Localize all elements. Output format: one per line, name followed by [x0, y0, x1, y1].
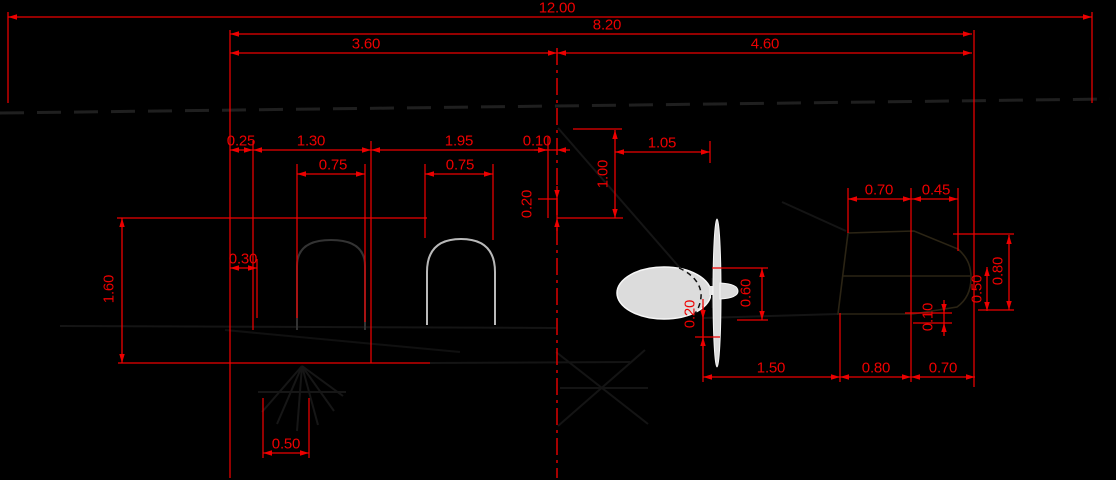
dim-label-offset-030: 0.30 — [229, 251, 257, 268]
dim-label-bay-130: 1.30 — [297, 133, 325, 150]
cad-drawing: 12.008.203.604.600.251.301.950.100.750.7… — [0, 0, 1116, 480]
dim-label-pod-clearance-020: 0.20 — [682, 300, 699, 328]
dim-label-rudder-height-080: 0.80 — [990, 257, 1007, 285]
dim-offset-030: 0.30 — [229, 251, 257, 271]
dim-label-rudder-050: 0.50 — [969, 275, 986, 303]
dim-label-bottom-050: 0.50 — [272, 436, 300, 453]
dim-label-rudder-top-045: 0.45 — [922, 182, 950, 199]
keel-line-dark — [430, 362, 630, 363]
dim-label-depth-160: 1.60 — [101, 275, 118, 303]
dim-label-aft-length: 8.20 — [593, 17, 621, 34]
dim-label-height-100: 1.00 — [595, 160, 612, 188]
cad-canvas: 12.008.203.604.600.251.301.950.100.750.7… — [0, 0, 1116, 480]
dim-label-tunnel1-width: 0.75 — [319, 157, 347, 174]
dim-label-cl-to-prop: 1.05 — [648, 135, 676, 152]
dim-label-pod-height-060: 0.60 — [738, 279, 755, 307]
dim-label-offset-025: 0.25 — [227, 133, 255, 150]
dim-label-overall-length: 12.00 — [539, 0, 576, 17]
dim-label-tunnel2-width: 0.75 — [446, 157, 474, 174]
dim-label-mid-to-cl: 3.60 — [352, 36, 380, 53]
dim-label-cl-020: 0.20 — [519, 190, 536, 218]
dim-label-rudder-bot-080: 0.80 — [862, 360, 890, 377]
dim-label-bay-195: 1.95 — [445, 133, 473, 150]
dim-label-rudder-rake-010: 0.10 — [920, 303, 937, 331]
dim-label-rudder-top-070: 0.70 — [865, 182, 893, 199]
dim-label-prop-to-rudder: 1.50 — [757, 360, 785, 377]
dim-label-gap-010: 0.10 — [523, 133, 551, 150]
dim-label-rudder-bot-070: 0.70 — [929, 360, 957, 377]
dim-label-cl-to-ap: 4.60 — [751, 36, 779, 53]
dim-offset-025: 0.25 — [227, 133, 255, 153]
drawing-background — [0, 0, 1116, 480]
